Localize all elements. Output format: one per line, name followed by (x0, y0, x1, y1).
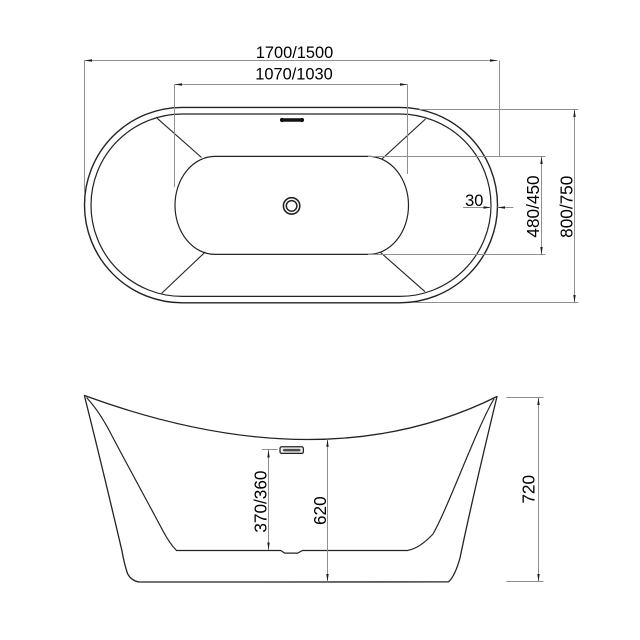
svg-text:480/450: 480/450 (523, 175, 543, 237)
svg-text:800/750: 800/750 (556, 176, 576, 238)
svg-text:370/360: 370/360 (250, 471, 270, 533)
svg-text:30: 30 (465, 192, 483, 210)
svg-text:720: 720 (519, 475, 539, 504)
svg-text:1700/1500: 1700/1500 (256, 44, 333, 62)
svg-text:1070/1030: 1070/1030 (255, 66, 332, 84)
svg-text:620: 620 (310, 496, 330, 525)
